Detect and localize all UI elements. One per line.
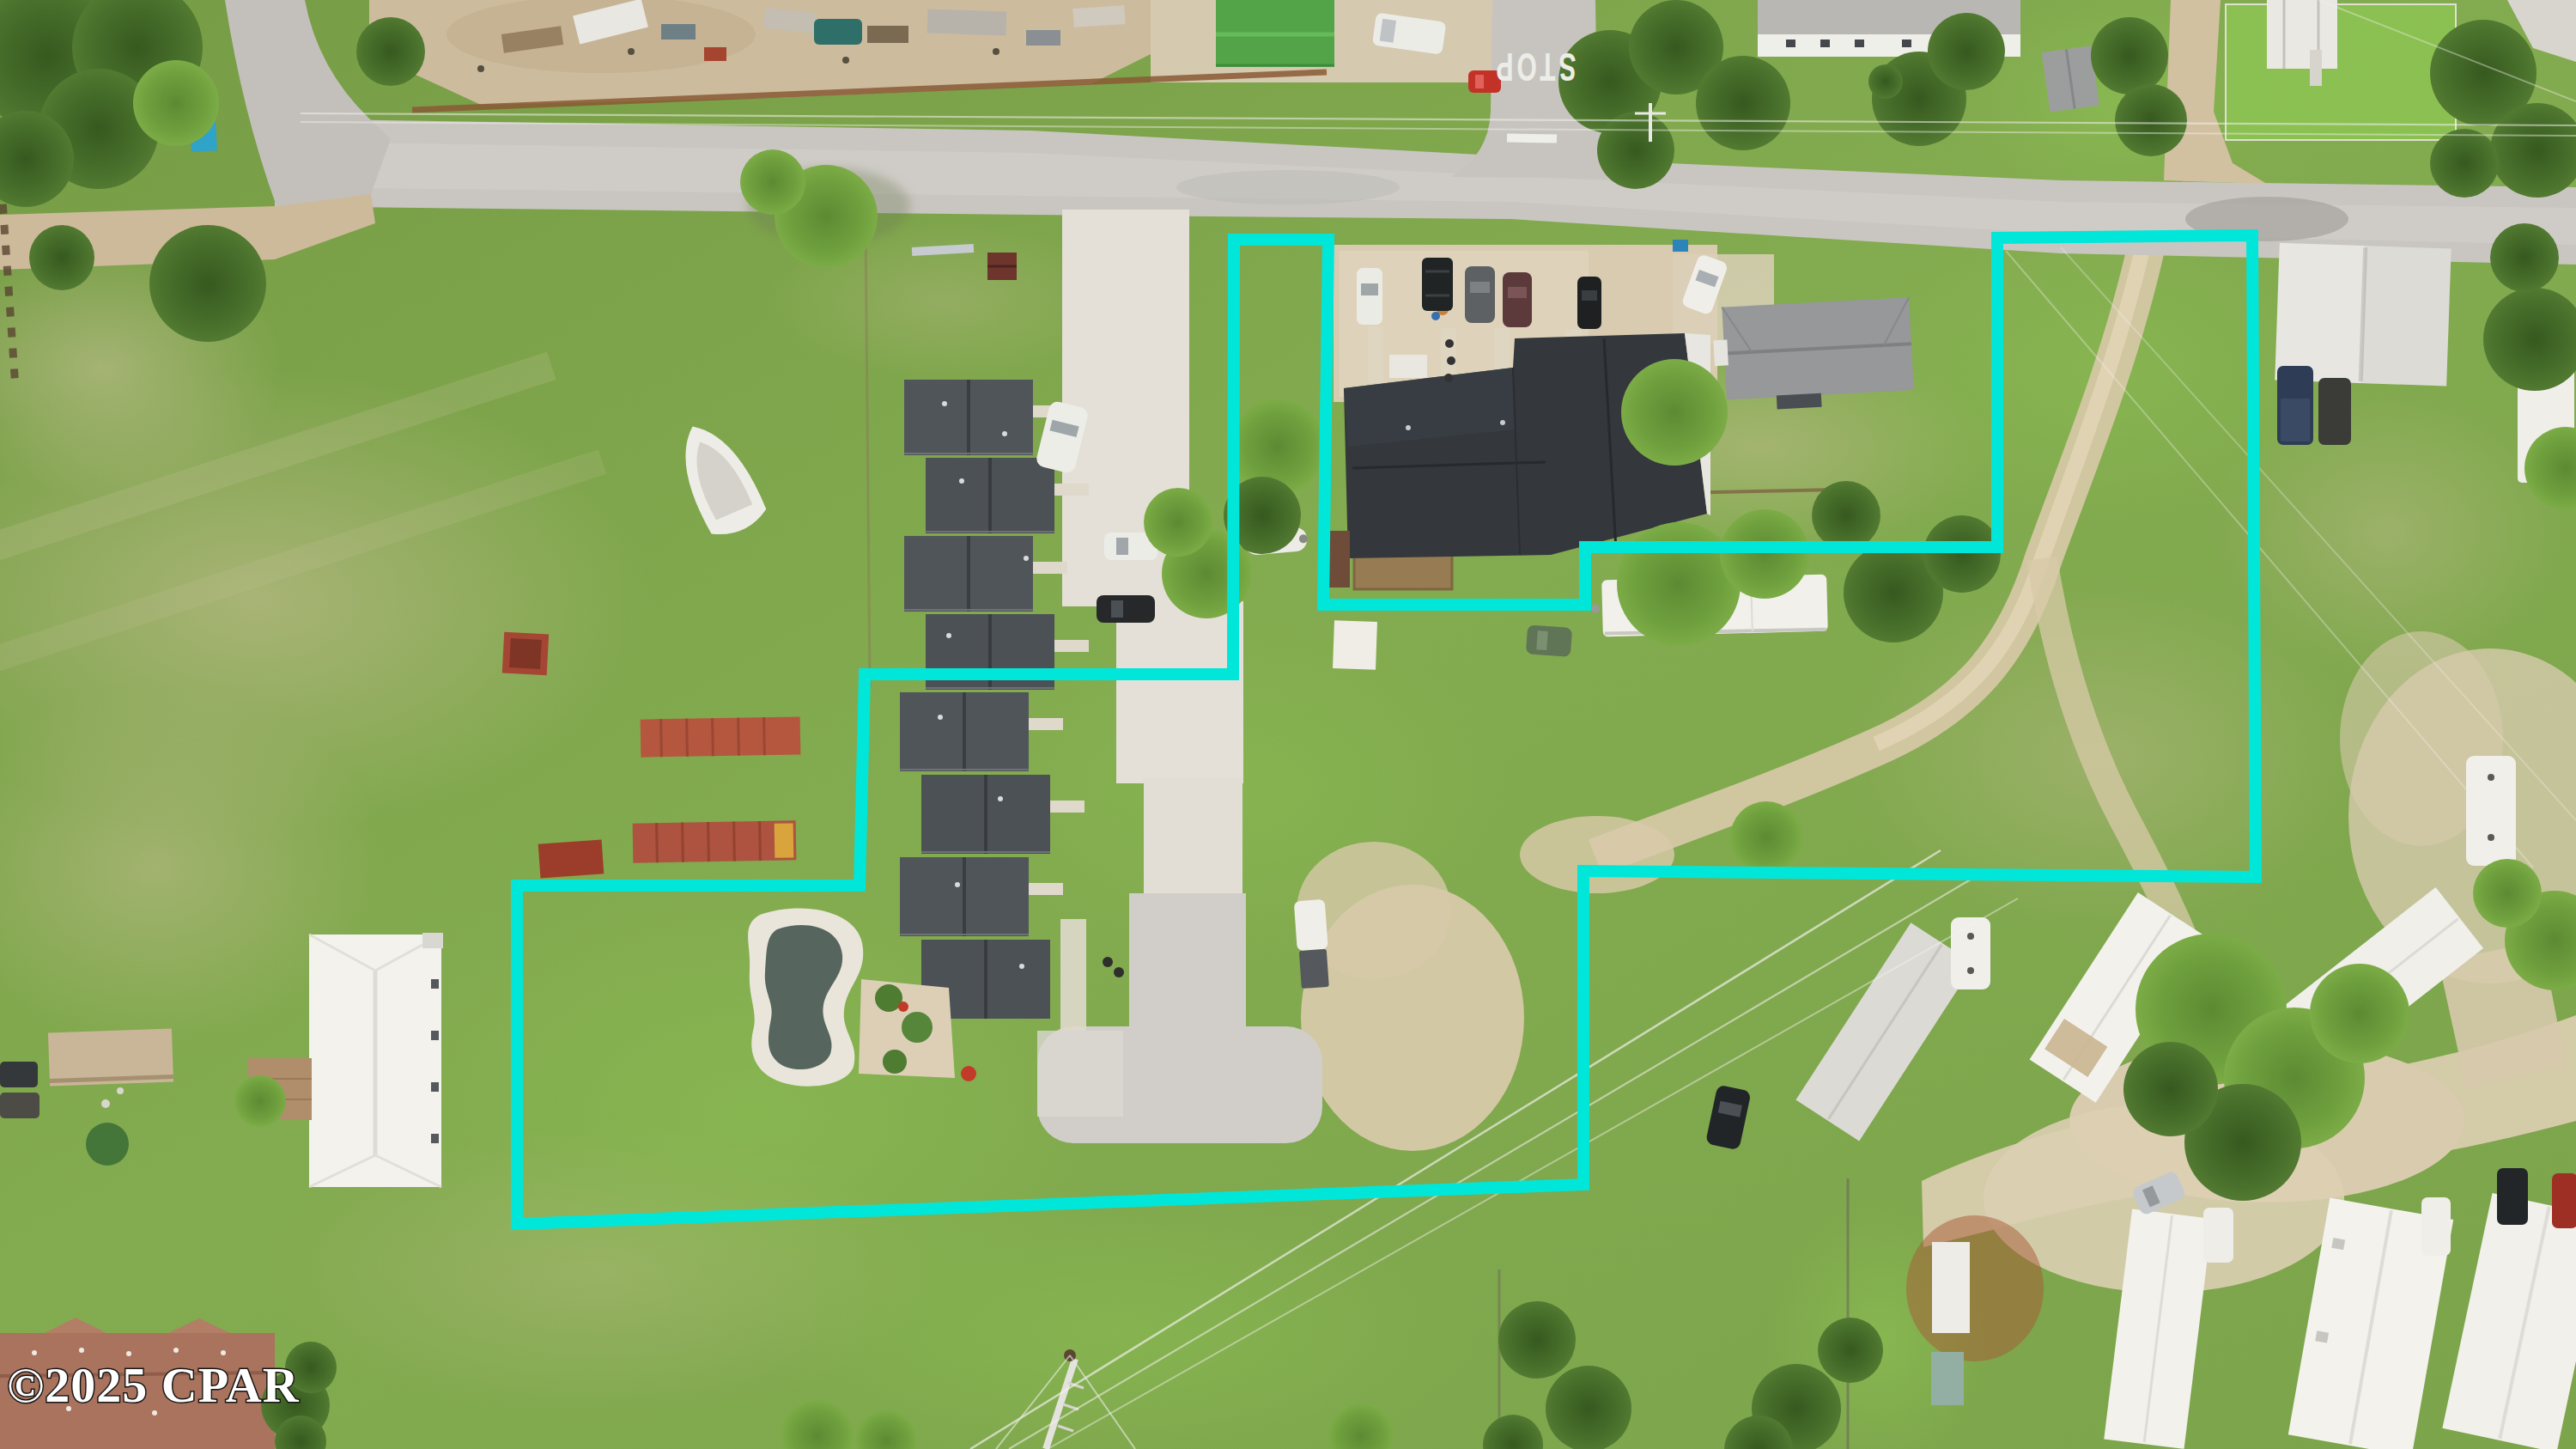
stop-bar-marking [1507,133,1557,143]
red-utility-trailer [538,839,605,878]
car [1465,266,1495,323]
car [0,1062,38,1087]
red-dump-trailer [502,632,549,676]
car [0,1093,39,1118]
car [1097,595,1155,623]
pickup-truck [2277,366,2313,445]
stop-marking-group: STOP [1492,45,1576,88]
white-gable-barn [2275,243,2451,387]
palm-tree [86,1123,129,1166]
car [1503,272,1532,327]
white-mobile-home-left [309,933,443,1187]
suv [2497,1168,2528,1225]
copyright-watermark: ©2025 CPAR [7,1357,300,1413]
white-rv-right [2466,756,2516,866]
car [2552,1173,2576,1228]
blue-bin [1673,240,1688,252]
white-sheet [1333,620,1377,670]
car [2421,1197,2451,1256]
car [1357,268,1382,325]
aerial-photo: STOP ©2025 CPAR [0,0,2576,1449]
aerial-photo-stage: STOP ©2025 CPAR [0,0,2576,1449]
gray-shed-top-right [2042,46,2099,112]
car [2203,1208,2233,1263]
car [2318,378,2351,445]
stop-road-marking: STOP [1492,45,1576,88]
car [1526,624,1572,657]
car [1577,277,1601,329]
tan-shed [48,1028,173,1086]
green-roof-building [1216,0,1334,67]
shipping-container [641,716,801,757]
jeep [1422,258,1453,311]
shipping-container [633,820,797,862]
